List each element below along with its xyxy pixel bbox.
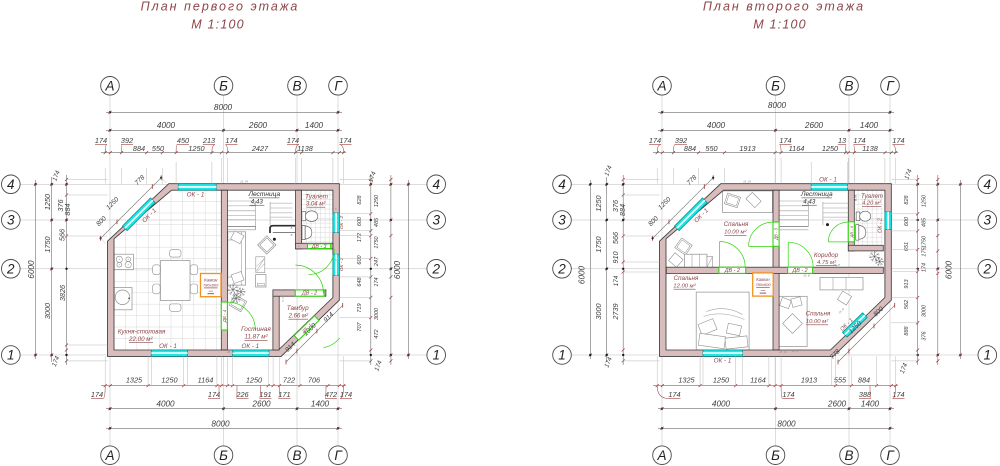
svg-text:1138: 1138 [297,144,314,153]
svg-text:174: 174 [892,390,904,399]
svg-text:648: 648 [357,276,363,286]
svg-text:828: 828 [904,194,910,204]
svg-text:8000: 8000 [214,103,233,112]
svg-text:6000: 6000 [945,260,954,279]
svg-text:6000: 6000 [577,265,586,284]
svg-text:4000: 4000 [156,400,175,409]
svg-text:Кухня-столовая: Кухня-столовая [118,328,166,335]
svg-text:Б: Б [771,79,780,94]
svg-text:В: В [844,448,853,463]
svg-text:1250: 1250 [188,144,204,153]
svg-text:3: 3 [7,213,15,228]
svg-text:1400: 1400 [861,400,880,409]
svg-text:174: 174 [668,390,680,399]
svg-text:8000: 8000 [768,101,787,110]
svg-text:ОК - 1: ОК - 1 [714,358,732,365]
svg-text:1164: 1164 [750,376,766,385]
svg-text:1250: 1250 [594,195,603,211]
svg-text:Б: Б [219,448,228,463]
svg-text:3826: 3826 [58,284,67,301]
svg-text:472: 472 [325,390,337,399]
svg-text:1250: 1250 [822,144,838,153]
svg-text:2.66 м²: 2.66 м² [288,313,309,319]
svg-text:4: 4 [432,177,440,192]
svg-text:1138: 1138 [862,144,879,153]
svg-text:А: А [656,79,666,94]
svg-text:Тамбур: Тамбур [287,304,309,312]
svg-text:1250: 1250 [43,194,52,210]
svg-text:4000: 4000 [157,121,176,130]
svg-text:174: 174 [374,277,380,286]
svg-text:8000: 8000 [777,419,796,428]
svg-text:А: А [104,448,114,463]
svg-text:485: 485 [922,217,928,227]
svg-text:566: 566 [58,228,67,241]
svg-text:175: 175 [922,246,928,256]
svg-text:Б: Б [771,448,780,463]
svg-text:Туалет: Туалет [305,194,328,201]
svg-text:10.00 м²: 10.00 м² [806,319,829,325]
svg-text:450: 450 [177,136,189,145]
svg-text:ДВ - 4: ДВ - 4 [222,309,227,323]
svg-text:1250: 1250 [374,194,380,207]
svg-text:28_В: 28_В [802,274,810,278]
svg-text:ДВ - 4: ДВ - 4 [849,225,854,238]
svg-text:376: 376 [922,330,928,340]
svg-text:4000: 4000 [712,400,731,409]
svg-text:485: 485 [374,217,380,227]
svg-text:Спальня: Спальня [806,311,831,318]
svg-text:719: 719 [357,303,363,312]
svg-text:550: 550 [705,144,717,153]
svg-text:ОК - 1: ОК - 1 [187,191,205,198]
svg-text:3.04 м²: 3.04 м² [306,202,326,208]
svg-text:3000: 3000 [922,304,928,317]
svg-text:1913: 1913 [739,144,755,153]
svg-text:1913: 1913 [801,376,817,385]
svg-text:174: 174 [649,136,661,145]
svg-text:1400: 1400 [311,400,330,409]
svg-text:1250: 1250 [922,194,928,207]
svg-text:10.00 м²: 10.00 м² [724,230,747,236]
svg-text:В: В [292,448,301,463]
svg-text:м: м [334,259,338,261]
svg-text:600: 600 [904,216,910,226]
svg-text:174: 174 [91,390,103,399]
svg-text:План первого этажа: План первого этажа [141,0,300,14]
svg-text:26_В: 26_В [791,349,799,353]
svg-text:780x600: 780x600 [203,283,219,288]
svg-text:М 1:100: М 1:100 [753,18,807,32]
svg-text:11.87 м²: 11.87 м² [244,334,268,341]
svg-text:ДВ - 2: ДВ - 2 [724,268,740,274]
svg-text:3: 3 [432,213,440,228]
svg-text:884: 884 [618,204,627,216]
svg-text:1: 1 [7,348,15,363]
svg-text:392: 392 [121,136,133,145]
svg-text:884: 884 [63,203,72,215]
svg-text:174: 174 [95,136,107,145]
svg-text:174: 174 [613,275,620,286]
svg-text:171: 171 [278,390,290,399]
svg-text:А: А [104,79,114,94]
svg-text:в_б: в_б [280,288,285,292]
svg-text:1250: 1250 [161,376,177,385]
svg-text:884: 884 [858,376,870,385]
svg-text:12.00 м²: 12.00 м² [673,283,696,289]
svg-text:707: 707 [357,321,363,331]
svg-text:2600: 2600 [248,121,268,130]
svg-text:1164: 1164 [198,376,214,385]
svg-text:562: 562 [904,300,910,309]
svg-text:1: 1 [984,348,992,363]
svg-text:2: 2 [431,262,440,277]
svg-text:ОК - 2: ОК - 2 [339,257,345,271]
svg-text:3000: 3000 [43,303,52,319]
svg-text:913: 913 [904,278,910,288]
svg-text:174: 174 [922,263,928,272]
svg-text:884: 884 [133,144,145,153]
svg-text:Спальня: Спальня [674,275,699,282]
svg-text:4: 4 [558,177,566,192]
svg-text:4: 4 [984,177,992,192]
svg-text:4,43: 4,43 [803,199,816,206]
svg-text:М 1:100: М 1:100 [191,18,245,32]
svg-text:4000: 4000 [707,121,726,130]
svg-text:Туалет: Туалет [861,193,883,200]
svg-text:А: А [656,448,666,463]
svg-text:828: 828 [357,194,363,204]
svg-text:2600: 2600 [251,400,271,409]
svg-text:Б: Б [219,79,228,94]
svg-text:1325: 1325 [678,376,695,385]
svg-text:ОК - 2: ОК - 2 [877,218,883,233]
svg-text:472: 472 [374,329,380,338]
svg-text:2600: 2600 [827,400,847,409]
svg-text:884: 884 [684,144,696,153]
svg-text:18_01: 18_01 [779,350,787,354]
svg-text:247: 247 [374,256,380,267]
svg-text:в_а: в_а [281,297,285,302]
svg-text:555: 555 [834,376,847,385]
svg-text:ОК - 1: ОК - 1 [241,343,259,350]
svg-text:2600: 2600 [804,121,824,130]
svg-text:4,43: 4,43 [251,199,264,206]
svg-text:2427: 2427 [251,144,269,153]
svg-text:2: 2 [983,262,992,277]
svg-text:1164: 1164 [789,144,805,153]
svg-text:8000: 8000 [211,419,230,428]
svg-text:4.20 м²: 4.20 м² [862,201,882,207]
svg-text:ОК - 2: ОК - 2 [339,215,345,229]
svg-text:22.00 м²: 22.00 м² [128,336,153,343]
svg-text:3000: 3000 [374,307,380,320]
svg-text:174: 174 [782,390,794,399]
svg-text:4: 4 [7,177,15,192]
svg-text:174: 174 [225,136,237,145]
svg-text:ДВ - 3: ДВ - 3 [311,244,327,250]
svg-text:В: В [292,79,301,94]
svg-text:6000: 6000 [393,260,402,279]
svg-text:2: 2 [6,262,15,277]
svg-text:1: 1 [558,348,566,363]
svg-text:Лестница: Лестница [800,191,833,198]
svg-text:191: 191 [259,390,271,399]
svg-text:6000: 6000 [27,260,36,279]
svg-text:16_04: 16_04 [743,180,751,184]
svg-text:1750: 1750 [43,236,52,252]
svg-text:1400: 1400 [305,121,324,130]
svg-text:18_01: 18_01 [227,350,235,354]
svg-text:ОК - 1: ОК - 1 [159,343,177,350]
svg-text:706: 706 [308,376,321,385]
svg-text:1750: 1750 [374,235,380,248]
svg-text:ДВ - 3: ДВ - 3 [774,227,779,240]
svg-text:174: 174 [208,390,220,399]
svg-text:16_04: 16_04 [240,180,248,184]
svg-text:25_М: 25_М [832,263,841,267]
svg-text:1325: 1325 [126,376,143,385]
svg-text:3000: 3000 [594,303,603,319]
svg-text:174: 174 [892,136,904,145]
svg-text:888: 888 [904,325,910,335]
svg-text:13: 13 [838,136,846,145]
svg-text:226: 226 [235,390,249,399]
svg-text:1750: 1750 [922,235,928,248]
svg-text:1400: 1400 [860,121,879,130]
svg-text:План второго этажа: План второго этажа [703,0,865,14]
svg-text:в_м: в_м [295,244,300,248]
svg-text:1: 1 [432,348,440,363]
svg-text:3: 3 [558,213,566,228]
svg-text:В: В [844,79,853,94]
svg-text:600: 600 [357,254,363,264]
svg-text:ОК - 1: ОК - 1 [819,177,837,184]
svg-text:1750: 1750 [594,236,603,252]
svg-text:3: 3 [984,213,992,228]
svg-text:566: 566 [611,231,620,244]
svg-text:172: 172 [357,233,363,242]
svg-text:м: м [334,208,338,210]
svg-text:780x600: 780x600 [755,282,771,287]
svg-text:1250: 1250 [713,376,729,385]
svg-text:910: 910 [611,251,620,263]
svg-text:2739: 2739 [611,303,620,320]
svg-text:600: 600 [357,216,363,226]
svg-text:722: 722 [283,376,295,385]
svg-text:Гостиная: Гостиная [241,326,271,333]
svg-text:2: 2 [557,262,566,277]
svg-text:174: 174 [339,136,351,145]
svg-text:Лестница: Лестница [247,191,280,198]
svg-text:Коридор: Коридор [814,252,839,259]
svg-text:Спальня: Спальня [724,221,749,228]
svg-text:550: 550 [152,144,164,153]
svg-text:ДВ - 2: ДВ - 2 [301,291,317,297]
svg-text:1250: 1250 [246,376,262,385]
